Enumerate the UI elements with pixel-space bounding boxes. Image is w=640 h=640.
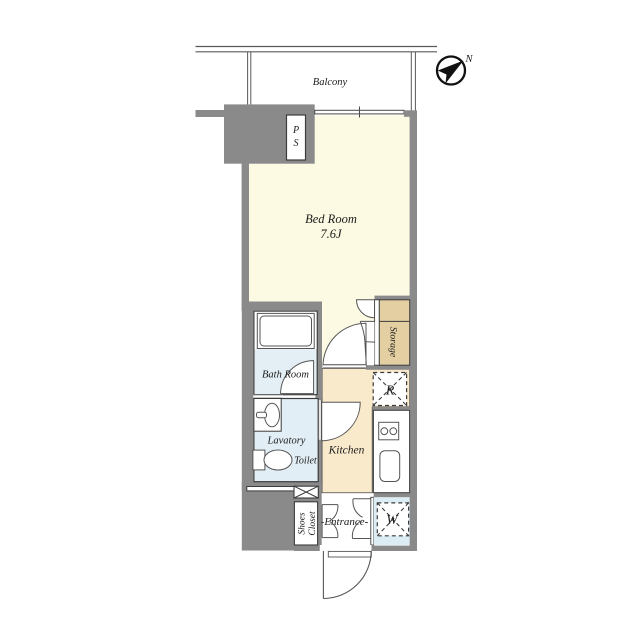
svg-text:N: N xyxy=(465,54,474,65)
svg-text:Bed Room: Bed Room xyxy=(305,212,357,226)
svg-text:Balcony: Balcony xyxy=(313,77,348,88)
svg-text:Toilet: Toilet xyxy=(294,456,317,467)
svg-text:P: P xyxy=(292,125,299,136)
svg-text:Storage: Storage xyxy=(388,327,399,358)
svg-text:Lavatory: Lavatory xyxy=(267,436,306,447)
svg-text:S: S xyxy=(294,138,299,149)
svg-text:Closet: Closet xyxy=(308,511,318,536)
svg-text:7.6J: 7.6J xyxy=(320,227,343,241)
svg-text:Shoes: Shoes xyxy=(297,512,307,534)
svg-text:-Entrance-: -Entrance- xyxy=(321,516,369,528)
svg-text:R: R xyxy=(385,384,395,399)
svg-text:Bath Room: Bath Room xyxy=(262,370,309,381)
svg-text:W: W xyxy=(386,512,399,527)
svg-text:Kitchen: Kitchen xyxy=(328,445,365,457)
